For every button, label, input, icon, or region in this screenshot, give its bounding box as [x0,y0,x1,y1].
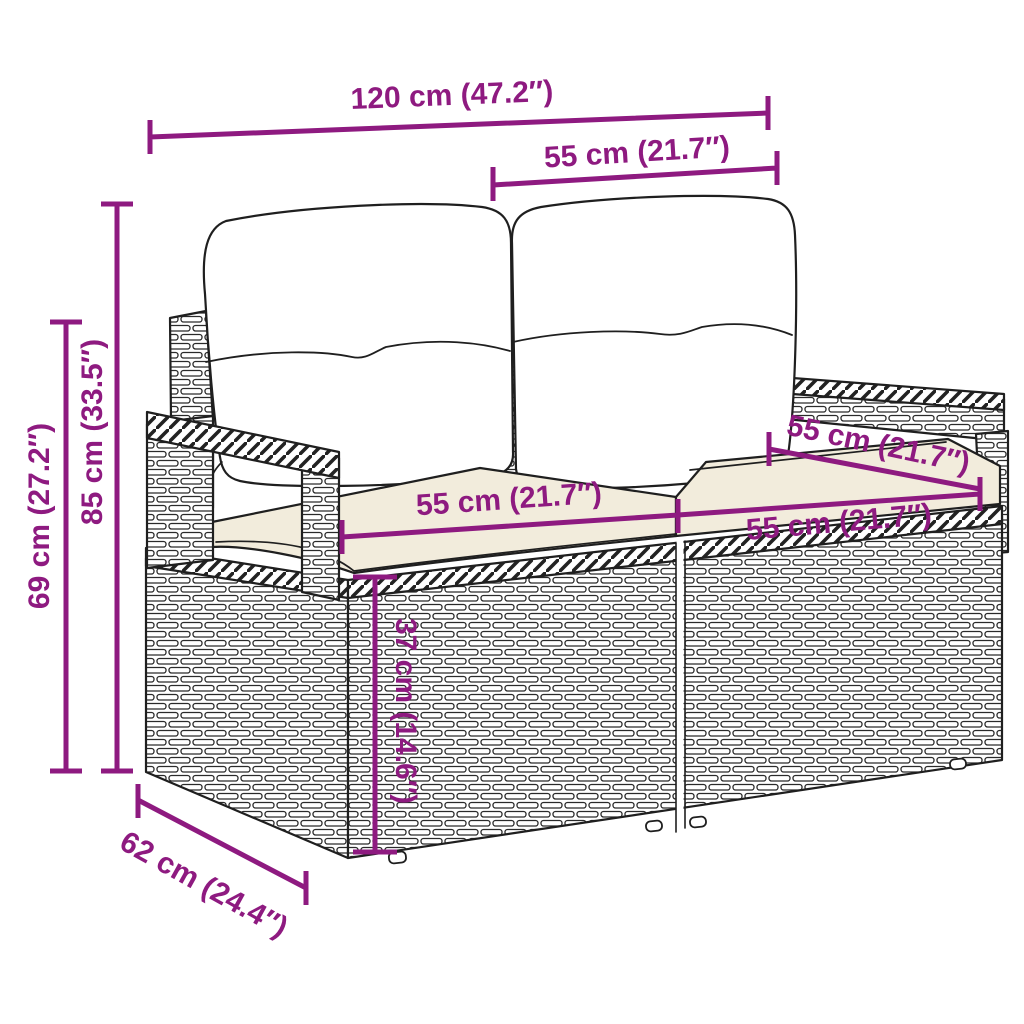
dim-label-armrest-height: 69 cm (27.2″) [23,423,56,609]
dim-label-total-height: 85 cm (33.5″) [76,339,109,525]
dim-label-back-section-width: 55 cm (21.7″) [543,130,731,174]
base-front-panel [348,516,1002,858]
base-side-panel [146,558,348,858]
dim-label-total-depth: 62 cm (24.4″) [114,825,293,944]
back-cushion-right [512,196,796,488]
diagram-canvas: 120 cm (47.2″) 55 cm (21.7″) 85 cm (33.5… [0,0,1024,1024]
dim-label-total-width: 120 cm (47.2″) [350,75,554,116]
dim-label-seat-height: 37 cm (14.6″) [389,618,422,804]
product-dimension-diagram: 120 cm (47.2″) 55 cm (21.7″) 85 cm (33.5… [0,0,1024,1024]
